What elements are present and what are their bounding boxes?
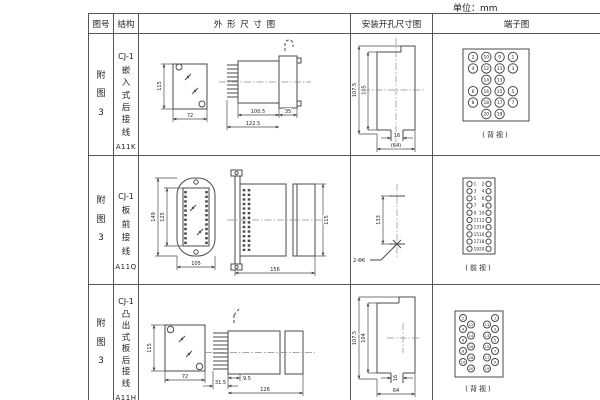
dim-body-length: 126 [260, 387, 270, 393]
terminal-circle [486, 217, 491, 222]
terminal-number: 19 [497, 112, 503, 118]
dim-front-width: 72 [182, 374, 188, 380]
terminal-circle [486, 203, 491, 208]
front-view: 115 72 [157, 64, 207, 122]
relay-code: A11H [116, 394, 137, 400]
relay-model: CJ-1 [118, 52, 134, 61]
terminal-columns: 1357911131517192468101214161820 [467, 181, 491, 251]
install-svg-row1: 107.5 105 16 (64) [351, 34, 432, 155]
terminal-number: 6 [482, 196, 485, 201]
terminal-svg-row1: 2109141211314136161558181772019 (背视) [433, 34, 600, 155]
terminal-view-label: (背视) [482, 130, 509, 139]
terminal-number: 6 [472, 89, 475, 95]
terminal-circle [467, 232, 472, 237]
dim-pin-length: 31.5 [215, 380, 226, 386]
dim-offset: 9.5 [243, 376, 251, 382]
relay-model: CJ-1 [118, 297, 134, 306]
terminal-number: 9 [498, 55, 501, 61]
dim-outer-height: 149 [151, 212, 157, 222]
dim-front-height: 115 [157, 81, 163, 91]
terminal-number: 14 [479, 225, 485, 230]
terminal-number: 13 [497, 77, 503, 83]
dim-hole-spacing: 133 [376, 215, 382, 225]
header-fig-no: 图号 [89, 14, 114, 34]
dim-opening-width: (64) [391, 143, 401, 149]
dim-opening-width: 64 [393, 388, 399, 394]
terminal-number: 15 [497, 89, 503, 95]
terminal-grid: 2109141211314136161558181772019 [468, 52, 517, 118]
outline-drawing-row1: 115 72 [139, 34, 351, 156]
structure-row3: CJ-1 凸出式板后接线 A11H [114, 285, 139, 400]
relay-model: CJ-1 [118, 192, 134, 201]
terminal-number: 12 [469, 323, 474, 327]
terminal-number: 2 [462, 316, 464, 320]
relay-code: A11K [116, 143, 136, 151]
terminal-number: 10 [479, 210, 485, 215]
dim-slot-width: 16 [394, 133, 400, 139]
terminal-number: 4 [472, 66, 475, 72]
front-view: 149 125 105 [151, 178, 215, 270]
terminal-circle [467, 189, 472, 194]
terminal-number: 9 [494, 360, 497, 364]
terminal-number: 18 [469, 356, 474, 360]
terminal-number: 5 [494, 338, 496, 342]
terminal-number: 16 [479, 232, 485, 237]
dimension-table: 图号 结构 外形尺寸图 安装开孔尺寸图 端子图 附图3 CJ-1 嵌入式后接线 … [88, 13, 600, 400]
document-page: 单位：mm 图号 结构 外形尺寸图 安装开孔尺寸图 端子图 附图3 CJ-1 嵌… [0, 0, 600, 400]
terminal-number: 4 [462, 327, 465, 331]
terminal-number: 8 [462, 349, 465, 353]
front-view: 115 72 [147, 325, 205, 383]
dim-slot-width: 16 [393, 375, 399, 381]
dim-flange-depth: 35 [285, 109, 291, 115]
terminal-number: 10 [461, 360, 466, 364]
terminal-number: 2 [482, 182, 485, 187]
structure-row2: CJ-1 板前接线 A11Q [114, 156, 139, 285]
terminal-number: 5 [474, 196, 477, 201]
terminal-number: 17 [497, 100, 503, 106]
terminal-drawing-row2: 1357911131517192468101214161820 (前视) [433, 156, 600, 285]
terminal-circle [467, 210, 472, 215]
dim-total-length: 122.5 [246, 121, 260, 127]
terminal-number: 1 [512, 55, 515, 61]
terminal-circle [486, 196, 491, 201]
fig-no-row2: 附图3 [89, 156, 114, 285]
terminal-number: 12 [479, 218, 485, 223]
terminal-number: 12 [484, 66, 490, 72]
terminal-circle [467, 203, 472, 208]
fig-no-row3: 附图3 [89, 285, 114, 400]
outline-drawing-row2: 149 125 105 [139, 156, 351, 285]
terminal-circle [467, 246, 472, 251]
terminal-number: 18 [484, 100, 490, 106]
terminal-number: 3 [494, 327, 496, 331]
terminal-number: 20 [469, 367, 474, 371]
terminal-svg-row3: 2468101214161820111315171913579 (背视) [433, 285, 600, 400]
install-drawing-row2: 133 2-Φ6 [351, 156, 433, 285]
install-svg-row3: 107.5 104 16 64 [351, 285, 432, 400]
install-drawing-row1: 107.5 105 16 (64) [351, 34, 433, 156]
terminal-circle [467, 181, 472, 186]
terminal-number: 20 [479, 246, 485, 251]
terminal-circle [467, 196, 472, 201]
terminal-drawing-row3: 2468101214161820111315171913579 (背视) [433, 285, 600, 400]
outline-drawing-row3: 115 72 [139, 285, 351, 400]
hook-detail [234, 309, 239, 325]
terminal-number: 11 [497, 66, 503, 72]
terminal-number: 14 [469, 334, 474, 338]
terminal-number: 3 [474, 189, 477, 194]
terminal-circle [486, 225, 491, 230]
terminal-number: 8 [472, 100, 475, 106]
side-view: 156 115 [227, 170, 330, 276]
terminal-circle [486, 189, 491, 194]
header-install: 安装开孔尺寸图 [351, 14, 433, 34]
structure-row1: CJ-1 嵌入式后接线 A11K [114, 34, 139, 156]
dim-body-length: 100.5 [251, 109, 265, 115]
terminal-drawing-row1: 2109141211314136161558181772019 (背视) [433, 34, 600, 156]
terminal-number: 10 [484, 55, 490, 61]
dim-front-height: 115 [147, 343, 153, 353]
terminal-circle [486, 239, 491, 244]
header-structure: 结构 [114, 14, 139, 34]
terminal-circle [467, 217, 472, 222]
dim-inner-height: 104 [361, 333, 367, 343]
side-view: 31.5 9.5 126 [203, 309, 315, 396]
terminal-circle [467, 225, 472, 230]
terminal-number: 7 [512, 100, 515, 106]
terminal-number: 16 [484, 89, 490, 95]
terminal-svg-row2: 1357911131517192468101214161820 (前视) [433, 156, 600, 284]
terminal-number: 2 [472, 55, 475, 61]
terminal-number: 3 [512, 66, 515, 72]
dim-front-width: 105 [191, 261, 201, 267]
header-outline: 外形尺寸图 [139, 14, 351, 34]
terminal-number: 14 [484, 77, 490, 83]
terminal-view-label: (前视) [465, 263, 492, 272]
header-terminal: 端子图 [433, 14, 600, 34]
terminal-number: 8 [482, 203, 485, 208]
fig-no-row1: 附图3 [89, 34, 114, 156]
terminal-number: 20 [484, 112, 490, 118]
terminal-number: 7 [474, 203, 477, 208]
hole-callout: 2-Φ6 [353, 258, 365, 264]
dim-side-height: 115 [324, 215, 330, 225]
outline-svg-row2: 149 125 105 [139, 156, 350, 284]
terminal-number: 7 [494, 349, 496, 353]
terminal-number: 15 [485, 345, 490, 349]
terminal-number: 13 [485, 334, 490, 338]
terminal-number: 1 [474, 182, 477, 187]
dim-outer-height: 107.5 [352, 83, 358, 97]
terminal-number: 4 [482, 189, 485, 194]
terminal-circle [486, 210, 491, 215]
outline-svg-row1: 115 72 [139, 34, 350, 155]
outline-svg-row3: 115 72 [139, 285, 350, 400]
relay-structure: 凸出式板后接线 [121, 310, 131, 390]
dim-inner-height: 105 [362, 85, 368, 95]
terminal-circle [486, 246, 491, 251]
install-svg-row2: 133 2-Φ6 [351, 156, 432, 284]
terminal-number: 6 [462, 338, 465, 342]
terminal-number: 9 [474, 210, 477, 215]
dim-total-length: 156 [270, 267, 280, 273]
terminal-number: 11 [485, 323, 490, 327]
terminal-view-label: (背视) [465, 384, 492, 393]
terminal-number: 5 [512, 89, 515, 95]
terminal-stagger: 2468101214161820111315171913579 [460, 315, 499, 373]
relay-structure: 嵌入式后接线 [121, 65, 131, 139]
dim-inner-height: 125 [160, 212, 166, 222]
terminal-number: 17 [485, 356, 490, 360]
dim-outer-height: 107.5 [352, 331, 358, 345]
relay-code: A11Q [115, 263, 136, 271]
terminal-circle [467, 239, 472, 244]
side-view: 100.5 35 122.5 [219, 40, 311, 130]
install-drawing-row3: 107.5 104 16 64 [351, 285, 433, 400]
terminal-number: 18 [479, 239, 485, 244]
dim-front-width: 72 [187, 113, 193, 119]
relay-structure: 板前接线 [121, 205, 131, 259]
terminal-number: 16 [469, 345, 474, 349]
terminal-number: 19 [485, 367, 490, 371]
terminal-circle [486, 181, 491, 186]
terminal-number: 1 [494, 316, 496, 320]
hook-detail [285, 40, 293, 51]
terminal-circle [486, 232, 491, 237]
